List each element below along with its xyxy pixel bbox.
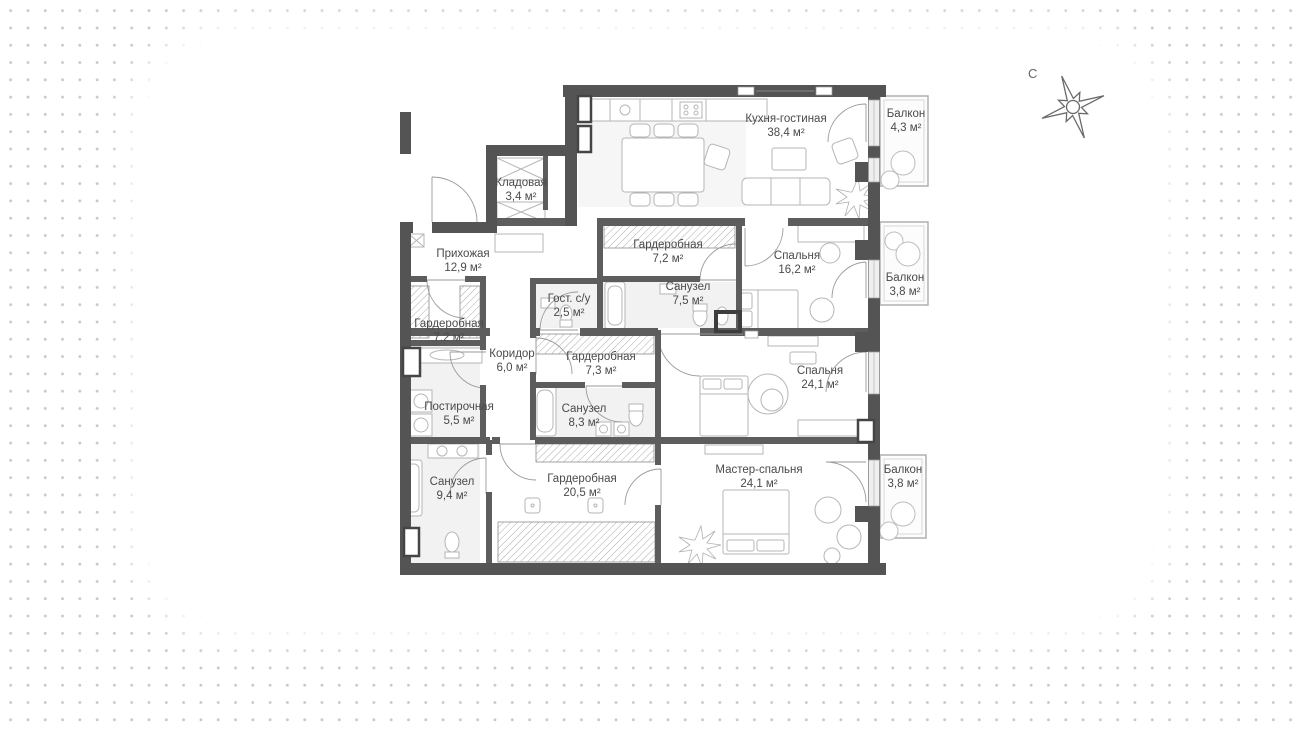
room-label-bathroom-83: Санузел8,3 м²: [562, 402, 607, 430]
storage-shelves: [495, 158, 545, 252]
dining-set: [622, 124, 704, 206]
room-label-bedroom-24: Спальня24,1 м²: [797, 364, 843, 392]
room-label-storage: Кладовая3,4 м²: [495, 176, 547, 204]
room-label-balcony-top: Балкон4,3 м²: [887, 107, 926, 135]
room-label-kitchen-living: Кухня-гостиная38,4 м²: [745, 112, 826, 140]
room-label-wardrobe-left: Гардеробная7,2 м²: [414, 317, 484, 345]
room-label-bathroom-75: Санузел7,5 м²: [666, 280, 711, 308]
room-label-master-bedroom: Мастер-спальня24,1 м²: [715, 463, 802, 491]
room-label-balcony-mid: Балкон3,8 м²: [886, 271, 925, 299]
room-label-wardrobe-205: Гардеробная20,5 м²: [547, 472, 617, 500]
wardrobe205-stools: [525, 498, 603, 513]
room-label-guest-wc: Гост. с/у2,5 м²: [548, 292, 591, 320]
floor-plan-page: Кухня-гостиная38,4 м² Балкон4,3 м² Кладо…: [0, 0, 1300, 729]
compass-rose: [1042, 76, 1104, 138]
compass-north-label: С: [1028, 66, 1037, 81]
room-label-laundry: Постирочная5,5 м²: [424, 400, 494, 428]
room-label-wardrobe-top: Гардеробная7,2 м²: [633, 238, 703, 266]
kitchen-counter: [579, 99, 767, 121]
room-label-corridor: Коридор6,0 м²: [489, 347, 534, 375]
room-label-bedroom-16: Спальня16,2 м²: [774, 249, 820, 277]
bedroom16-furniture: [738, 224, 864, 330]
room-label-entry-hall: Прихожая12,9 м²: [436, 247, 489, 275]
room-label-wardrobe-73: Гардеробная7,3 м²: [566, 350, 636, 378]
floor-plan-drawing: [0, 0, 1300, 729]
room-label-bathroom-94: Санузел9,4 м²: [430, 475, 475, 503]
room-label-balcony-bottom: Балкон3,8 м²: [884, 463, 923, 491]
entry-hall-fixture: [409, 234, 424, 247]
